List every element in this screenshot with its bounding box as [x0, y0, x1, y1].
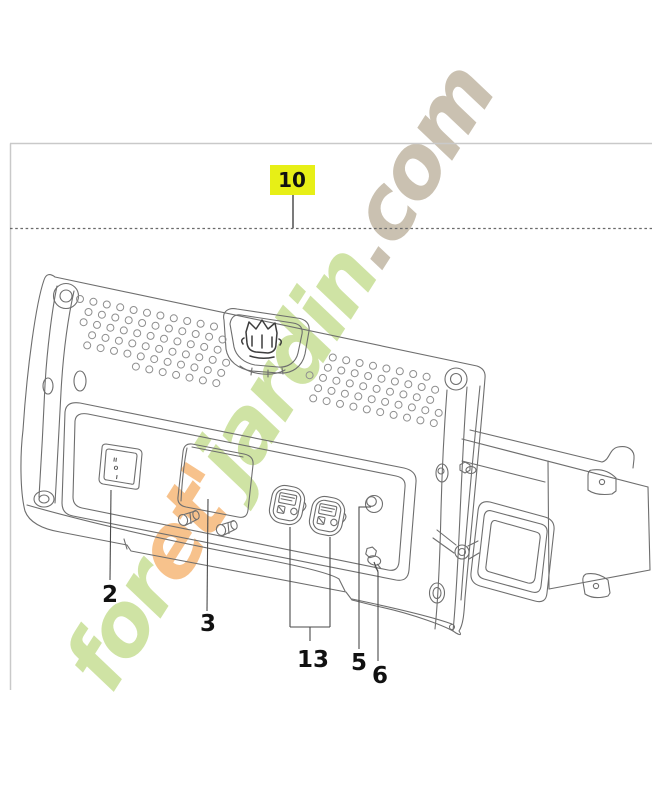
strut-boss: [445, 368, 467, 390]
outlet-socket-left: [267, 483, 309, 527]
gasket-frame: [471, 502, 554, 602]
callout-13-label: 13: [297, 647, 329, 673]
strut-boss-lower: [34, 491, 54, 507]
strut-boss: [54, 284, 79, 309]
control-recess: [62, 403, 416, 581]
callout-13-leader: [290, 527, 330, 641]
plate-screw-right: [215, 520, 238, 537]
switch-mark-O: O: [113, 466, 119, 473]
rocker-switch-markings: II O I: [110, 457, 120, 481]
callout-6-label: 6: [372, 663, 388, 689]
callout-5-label: 5: [351, 650, 367, 676]
arm-bolt: [460, 462, 470, 473]
callout-3-leader: [207, 499, 208, 611]
push-button: [366, 496, 383, 513]
parts-diagram-canvas: 10: [0, 0, 652, 800]
strut-hole: [74, 371, 86, 391]
left-strut: [34, 284, 86, 508]
callout-10: 10: [270, 165, 315, 228]
switch-mark-I: I: [115, 475, 118, 481]
outlet-socket-right: [307, 494, 349, 538]
mounting-tab-upper: [588, 470, 616, 495]
mounting-tab-lower: [583, 574, 610, 598]
callout-leaders: [110, 490, 378, 661]
plate-screw-left: [177, 510, 200, 527]
callout-10-label: 10: [278, 168, 306, 192]
mounting-bracket-box: [460, 430, 650, 598]
switch-mark-II: II: [113, 457, 118, 464]
callout-2-label: 2: [102, 582, 118, 608]
handle-recess: [224, 309, 310, 377]
control-panel-drawing: [21, 275, 650, 635]
panel-bottom-fold: [27, 505, 345, 591]
vent-hole-grid-right: [306, 354, 442, 427]
husqvarna-crown-logo: [242, 320, 282, 358]
callout-3-label: 3: [200, 611, 216, 637]
callout-2-leader: [110, 490, 111, 580]
control-panel-outline: [21, 275, 485, 635]
panel-right-inner-edge: [461, 386, 480, 600]
parts-diagram-page: foret'jardin.com 10: [0, 0, 652, 800]
callout-5-leader: [359, 507, 371, 649]
rocker-switch: [99, 444, 142, 489]
blank-plate: [178, 444, 253, 517]
